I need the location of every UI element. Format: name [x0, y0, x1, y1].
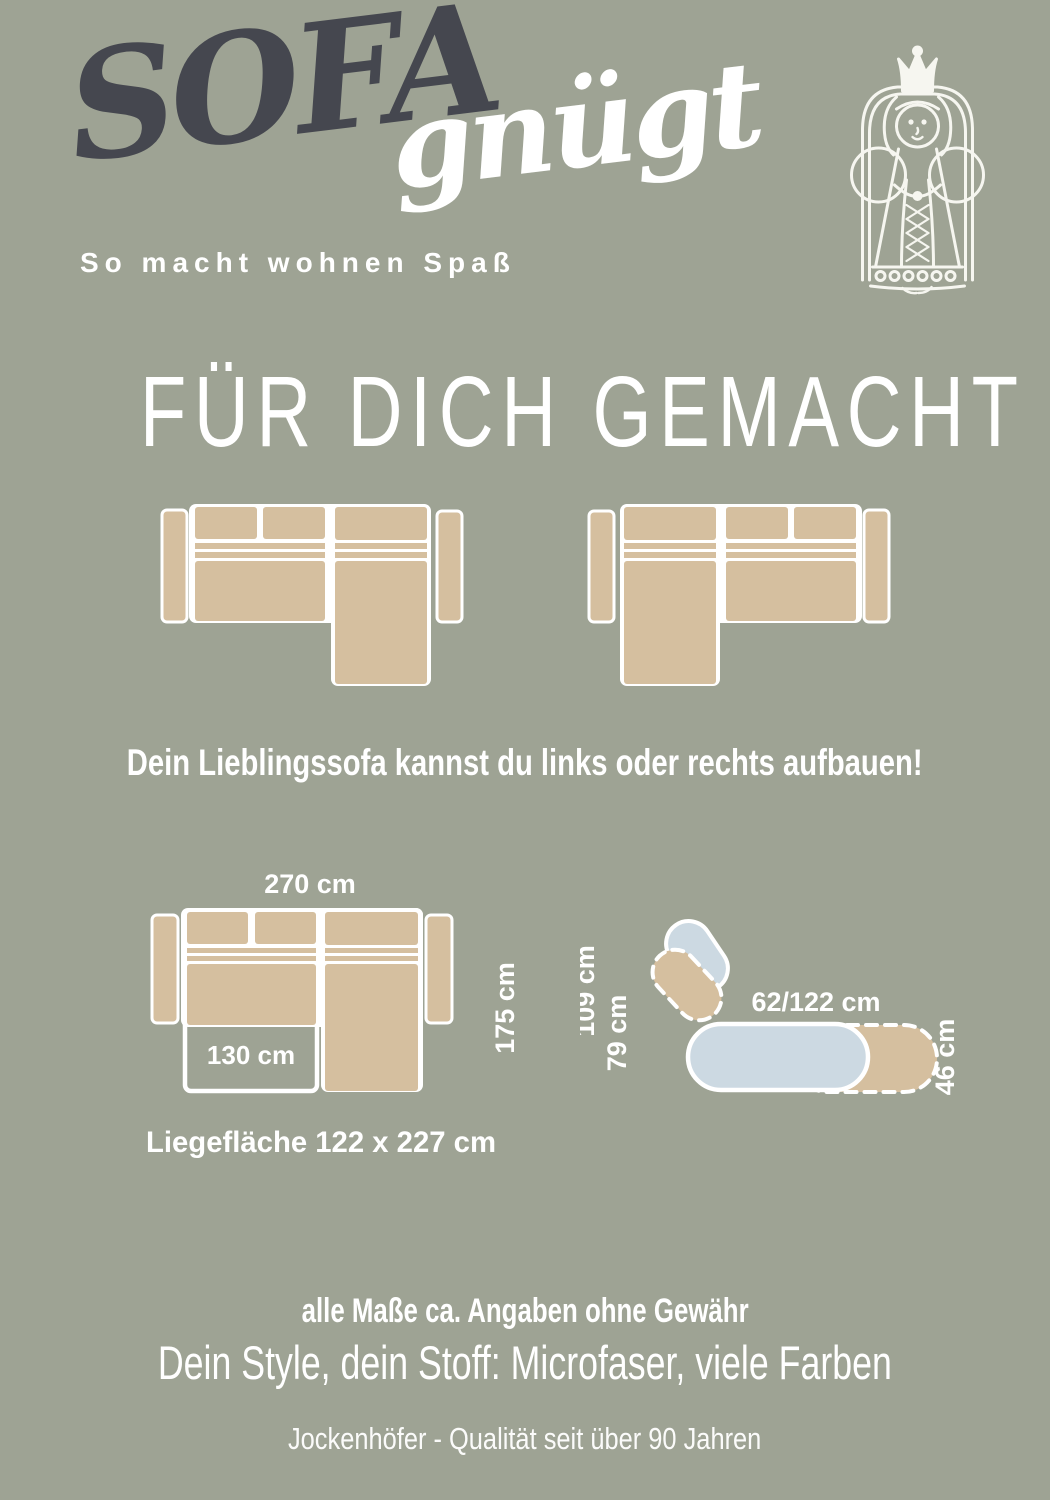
seat	[195, 561, 325, 621]
measurements-disclaimer: alle Maße ca. Angaben ohne Gewähr	[0, 1290, 1050, 1332]
seat-base	[688, 1024, 868, 1090]
back-cushion	[794, 507, 856, 539]
fabric-style-line: Dein Style, dein Stoff: Microfaser, viel…	[0, 1334, 1050, 1392]
sleeping-surface-label: Liegefläche 122 x 227 cm	[146, 1126, 496, 1159]
function-diagram: 109 cm 79 cm 62/122 cm 46 cm	[580, 910, 1000, 1120]
seat	[726, 561, 856, 621]
armrest-left	[589, 511, 614, 622]
chaise-longue	[325, 964, 418, 1091]
face	[897, 105, 939, 147]
back-cushion	[263, 507, 325, 539]
back-cushion	[624, 507, 716, 540]
total-depth-label: 175 cm	[490, 962, 520, 1054]
logo-tagline: So macht wohnen Spaß	[80, 247, 516, 279]
seat	[187, 964, 316, 1025]
back-cushion	[726, 507, 788, 539]
crown-icon	[899, 53, 937, 91]
chaise-longue	[624, 561, 716, 684]
armrest-left	[162, 510, 187, 622]
orientation-note: Dein Lieblingssofa kannst du links oder …	[0, 740, 1050, 786]
chaise-longue	[335, 561, 427, 684]
armrest-right	[864, 510, 889, 622]
product-flyer: SOFA gnügt So macht wohnen Spaß	[0, 0, 1050, 1500]
dimension-diagram: 270 cm 130 cm 175 cm Liegefläche 122 x 2…	[140, 860, 540, 1160]
armrest-left	[152, 915, 178, 1023]
total-width-label: 270 cm	[264, 869, 356, 899]
queen-mascot-icon	[840, 45, 995, 295]
seat-depth-range-label: 62/122 cm	[751, 987, 880, 1017]
seat-height-label: 46 cm	[930, 1019, 960, 1096]
back-cushion	[335, 507, 427, 540]
sofa-top-view-chaise-right	[160, 504, 464, 687]
sofa-top-view-chaise-left	[587, 504, 891, 687]
back-cushion	[255, 912, 316, 944]
bed-extension-width-label: 130 cm	[207, 1040, 295, 1070]
brand-quality-line: Jockenhöfer - Qualität seit über 90 Jahr…	[0, 1418, 1050, 1460]
backrest-reclined-measure-label: 79 cm	[602, 995, 632, 1072]
back-cushion	[325, 912, 418, 945]
armrest-right	[437, 511, 462, 622]
back-cushion	[187, 912, 248, 944]
armrest-right	[426, 915, 452, 1023]
page-title: FÜR DICH GEMACHT	[0, 360, 1050, 464]
backrest-measure-label: 109 cm	[580, 945, 600, 1037]
back-cushion	[195, 507, 257, 539]
